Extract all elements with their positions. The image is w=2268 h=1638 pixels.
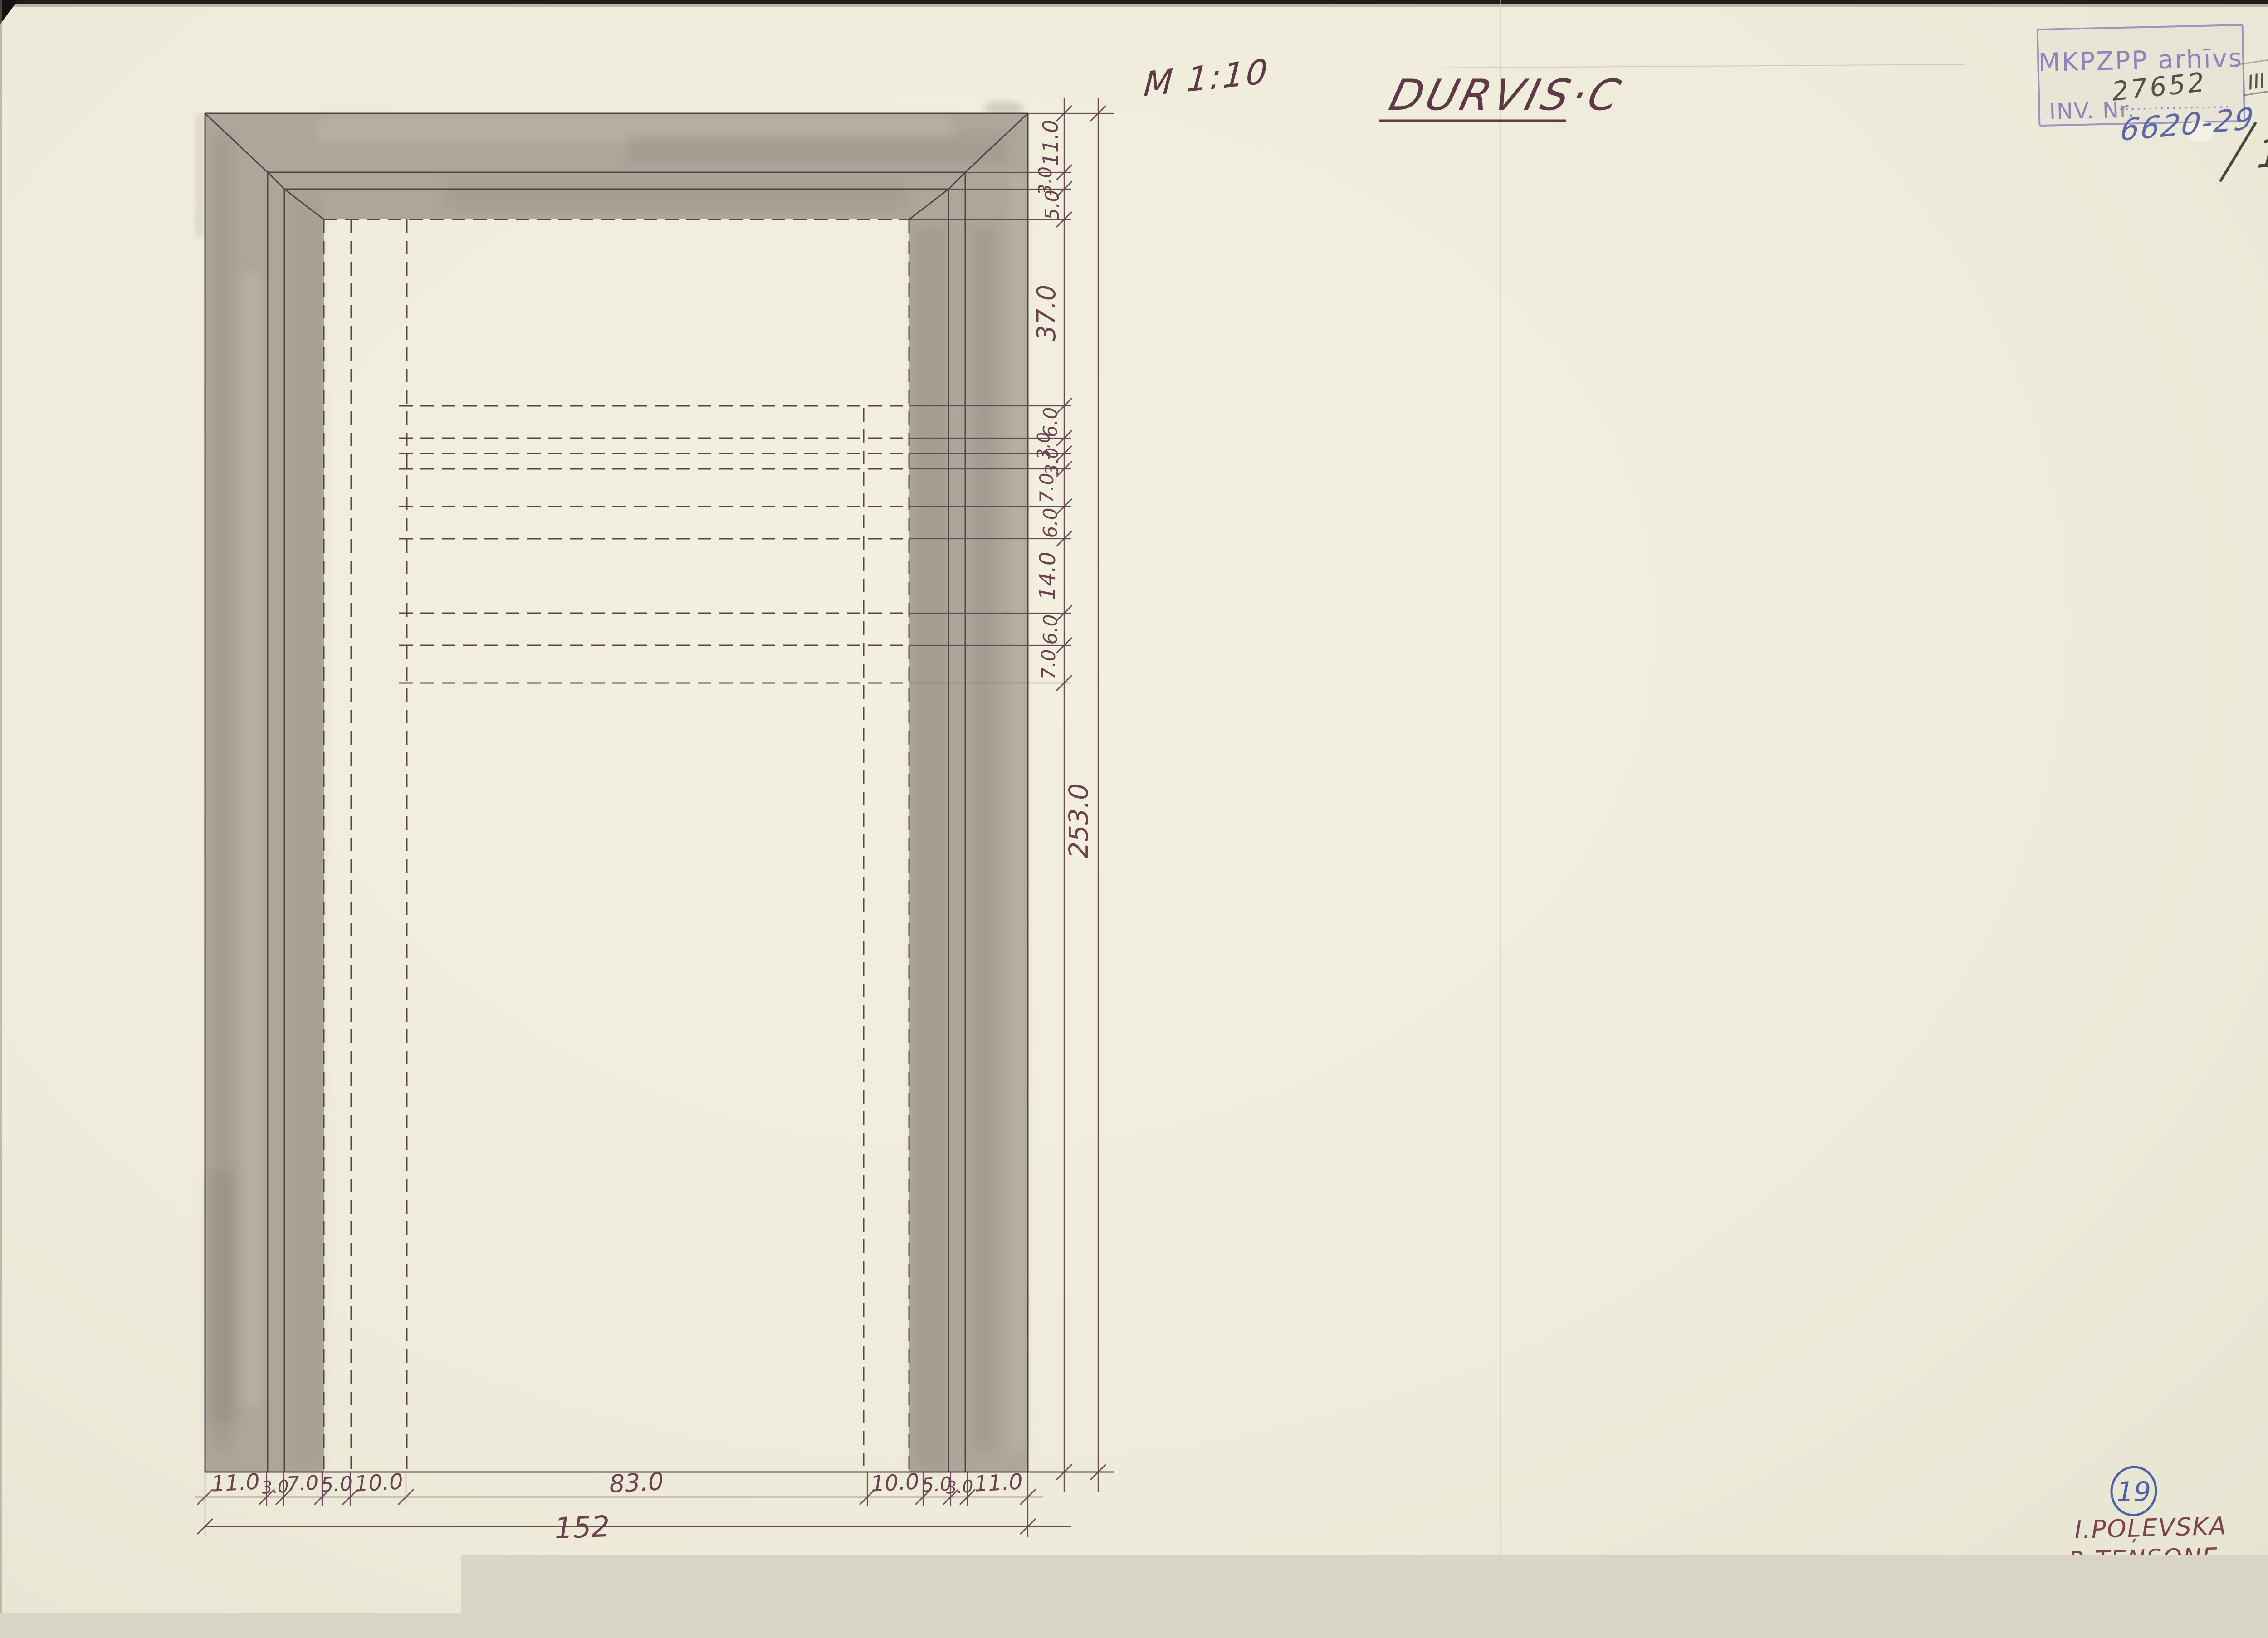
- sheet-badge: 19: [2109, 1464, 2159, 1517]
- dim-label: 6.0: [1039, 614, 1061, 645]
- roman-numeral-mark: III: [2246, 69, 2267, 95]
- hidden-horizontal-rails: [324, 219, 909, 683]
- door-hidden-lines: [324, 219, 909, 1472]
- wash-streak: [1011, 172, 1024, 1451]
- wash-streak: [914, 227, 946, 1469]
- scan-corner-wedge: [0, 0, 18, 24]
- dim-total-height-label: 253.0: [1063, 783, 1094, 858]
- right-dimension-labels: 11.0 3.0 5.0 37.0 6.0 3.0 3.0 7.0 6.0 14…: [1032, 120, 1094, 858]
- wash-streak: [445, 178, 907, 210]
- frame-wash-base: [205, 113, 1028, 1472]
- author-name: A.ARTIŠEVSKIS: [2059, 1571, 2256, 1605]
- author-name: I.POĻEVSKA: [2074, 1511, 2227, 1544]
- dim-label: 3.0: [261, 1476, 289, 1497]
- dim-label: 3.0: [945, 1476, 974, 1497]
- header-notations: M 1:10 DURVIS·C: [1143, 52, 1628, 121]
- dim-label: 7.0: [1036, 473, 1058, 503]
- door-frame-wash: [195, 101, 1028, 1472]
- wash-streak: [208, 1170, 237, 1424]
- scanned-drawing-sheet: 11.0 3.0 5.0 37.0 6.0 3.0 3.0 7.0 6.0 14…: [0, 0, 2268, 1638]
- dim-label: 11.0: [973, 1469, 1023, 1497]
- scan-edge-artifacts: [0, 0, 2268, 1638]
- dim-label: 3.0: [1042, 448, 1062, 475]
- drawing-title: DURVIS·C: [1384, 70, 1628, 120]
- dim-label: 5.0: [320, 1472, 353, 1497]
- page-number: 11: [2256, 128, 2268, 177]
- badge-number: 19: [2116, 1476, 2151, 1508]
- frame-wash-streaks: [208, 118, 1024, 1469]
- dim-label: 14.0: [1035, 552, 1061, 600]
- scan-smudge: [2251, 1607, 2268, 1631]
- signature-block: I.POĻEVSKA R.TENSONE A.ARTIŠEVSKIS 1986.: [2059, 1511, 2256, 1635]
- dim-total-width-label: 152: [554, 1510, 611, 1545]
- wash-streak: [973, 227, 994, 1451]
- hidden-vertical-lines: [324, 219, 909, 1472]
- dim-label: 7.0: [286, 1471, 319, 1496]
- wash-overshoot: [195, 114, 204, 237]
- bottom-dimension-labels: 11.0 3.0 7.0 5.0 10.0 83.0 10.0 5.0 3.0 …: [210, 1467, 1023, 1545]
- dim-label: 7.0: [1037, 649, 1060, 680]
- wash-streak: [626, 135, 1007, 163]
- year-label: 1986.: [2117, 1604, 2195, 1635]
- scan-left-edge: [0, 0, 2, 1638]
- wash-streak: [245, 272, 259, 1406]
- scan-top-edge-fade: [0, 4, 2268, 7]
- wash-streak: [288, 195, 321, 1469]
- author-name: R.TENSONE: [2068, 1542, 2219, 1575]
- dim-label: 6.0: [1039, 508, 1061, 538]
- dim-label: 11.0: [1038, 120, 1063, 166]
- door-drawing-canvas: 11.0 3.0 5.0 37.0 6.0 3.0 3.0 7.0 6.0 14…: [0, 0, 2268, 1638]
- dim-label: 11.0: [210, 1469, 260, 1497]
- dim-label: 5.0: [1041, 190, 1063, 220]
- dim-label: 10.0: [870, 1469, 920, 1497]
- frame-outline: [205, 113, 1028, 1472]
- dim-label: 83.0: [608, 1467, 664, 1498]
- scale-note: M 1:10: [1143, 52, 1271, 104]
- stamp-org-text: MKPZPP arhīvs: [2038, 44, 2244, 78]
- dim-label: 37.0: [1032, 285, 1061, 341]
- scan-top-edge: [0, 0, 2268, 4]
- dim-label: 10.0: [354, 1469, 404, 1497]
- title-guideline: [1424, 64, 1964, 68]
